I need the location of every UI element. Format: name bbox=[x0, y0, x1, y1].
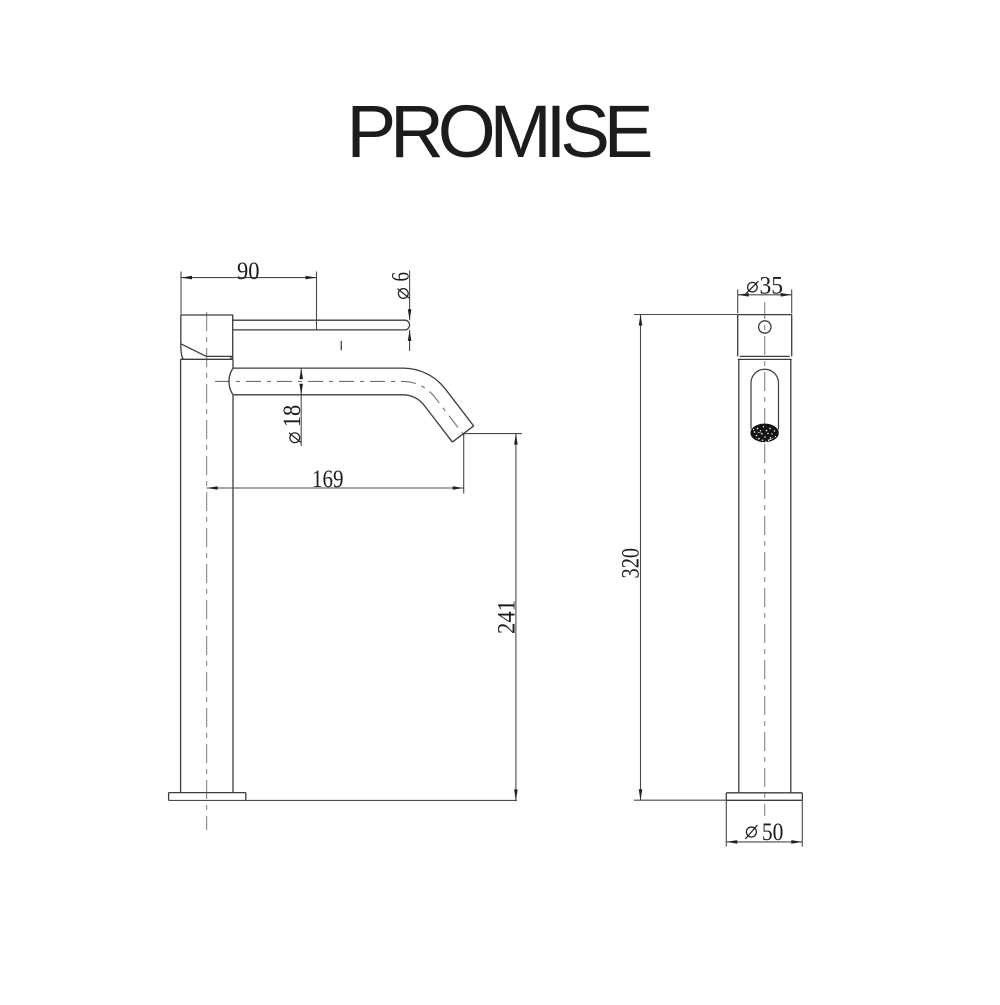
svg-text:241: 241 bbox=[494, 600, 521, 634]
svg-text:169: 169 bbox=[312, 466, 344, 493]
svg-text:90: 90 bbox=[237, 258, 260, 285]
svg-text:6: 6 bbox=[388, 272, 415, 282]
svg-text:PROMISE: PROMISE bbox=[347, 90, 654, 173]
svg-text:18: 18 bbox=[279, 405, 306, 427]
svg-text:35: 35 bbox=[760, 273, 784, 300]
svg-text:320: 320 bbox=[618, 548, 645, 579]
svg-text:50: 50 bbox=[762, 819, 784, 846]
